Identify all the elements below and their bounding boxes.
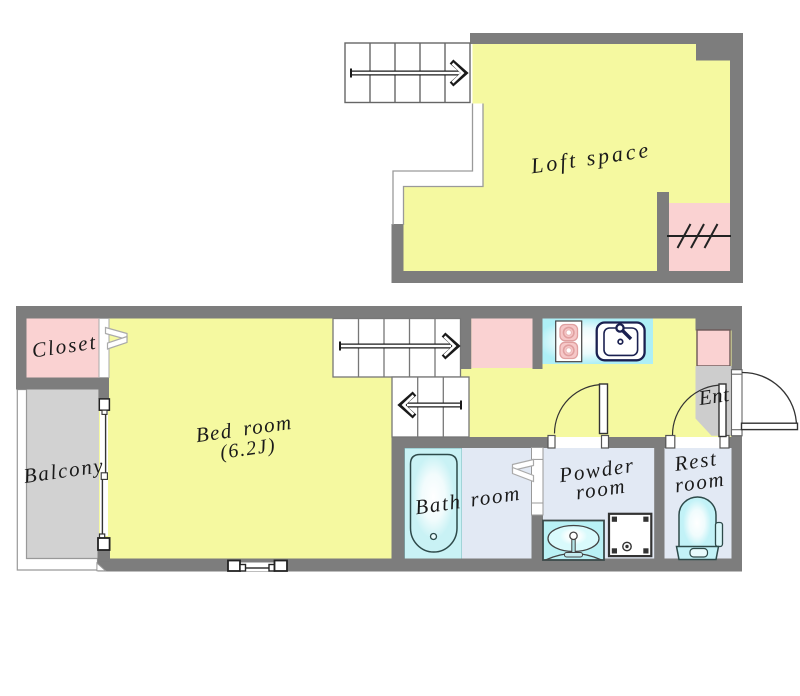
svg-text:Ent: Ent xyxy=(696,382,731,410)
